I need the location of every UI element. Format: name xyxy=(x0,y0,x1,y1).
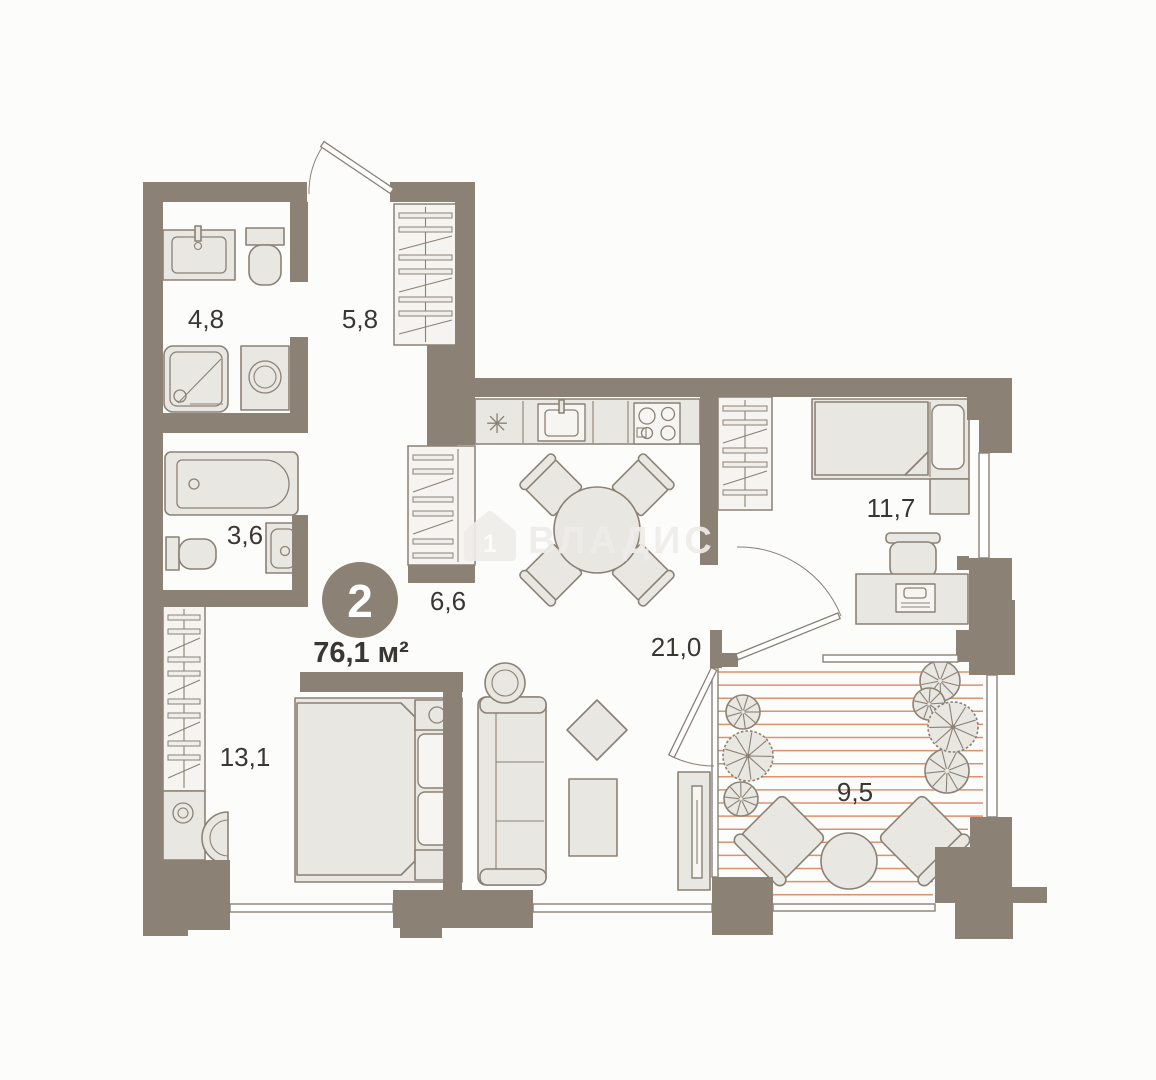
terrace-table xyxy=(821,833,877,889)
wardrobe-cabinet xyxy=(163,791,205,860)
room-label-bathroom-small: 4,8 xyxy=(188,304,224,334)
plant xyxy=(925,749,969,793)
floor-plan: ✳ xyxy=(0,0,1156,1080)
total-area-label: 76,1 м² xyxy=(313,637,409,669)
terrace-rail xyxy=(712,668,718,877)
plant-pot xyxy=(485,663,525,703)
tv-stand xyxy=(678,772,710,890)
coffee-table xyxy=(569,779,617,856)
entrance-door xyxy=(309,142,394,194)
glazed-wall xyxy=(823,655,958,662)
area-badge: 2 76,1 м² xyxy=(313,562,409,669)
terrace-door xyxy=(669,668,717,766)
bedroom-terrace-door xyxy=(736,547,841,660)
stove xyxy=(634,403,680,444)
bathroom-sink xyxy=(163,226,235,280)
washing-machine xyxy=(241,346,289,410)
desk xyxy=(856,574,968,624)
toilet-2 xyxy=(166,537,216,570)
computer xyxy=(896,584,935,612)
decor-diamond xyxy=(567,700,627,760)
room-label-corridor: 6,6 xyxy=(430,586,466,616)
room-label-entrance-hall: 5,8 xyxy=(342,304,378,334)
toilet xyxy=(246,228,284,285)
shower-tray xyxy=(164,346,228,412)
room-count: 2 xyxy=(347,575,373,627)
plant xyxy=(724,782,758,816)
window xyxy=(230,904,393,912)
window xyxy=(987,675,997,817)
sofa xyxy=(478,697,546,885)
double-bed xyxy=(295,698,462,882)
kitchen-sink xyxy=(538,400,585,441)
room-label-kitchen-living: 21,0 xyxy=(651,632,702,662)
room-label-bedroom-second: 11,7 xyxy=(867,493,916,523)
room-label-bedroom-main: 13,1 xyxy=(220,742,271,772)
window xyxy=(533,904,712,912)
fridge-symbol: ✳ xyxy=(486,409,509,439)
floor-plan-canvas: ✳ xyxy=(0,0,1156,1080)
watermark: 1 ВЛАДИС xyxy=(468,515,716,562)
room-label-bathroom-bath: 3,6 xyxy=(227,520,263,550)
room-label-terrace: 9,5 xyxy=(837,777,873,807)
bathtub xyxy=(165,452,298,515)
plant xyxy=(726,695,760,729)
plant xyxy=(928,702,978,752)
window xyxy=(979,453,989,558)
watermark-brand: ВЛАДИС xyxy=(528,520,716,562)
window xyxy=(773,904,935,911)
desk-chair xyxy=(886,533,940,577)
plant xyxy=(723,731,773,781)
nightstand xyxy=(930,479,969,514)
watermark-number: 1 xyxy=(483,530,497,558)
floor-lamp xyxy=(202,812,228,864)
